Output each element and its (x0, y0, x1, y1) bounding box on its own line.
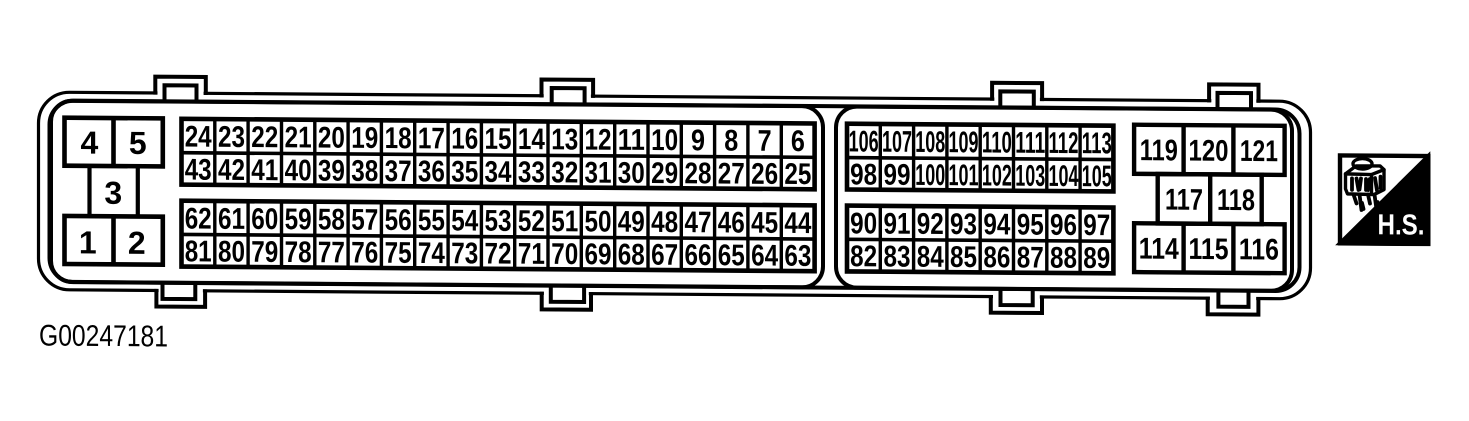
svg-text:93: 93 (950, 208, 977, 241)
svg-text:88: 88 (1050, 242, 1077, 275)
svg-text:61: 61 (218, 203, 245, 236)
svg-text:65: 65 (718, 239, 745, 272)
svg-text:24: 24 (185, 121, 212, 154)
svg-text:22: 22 (251, 121, 278, 154)
svg-text:44: 44 (784, 207, 811, 240)
svg-text:58: 58 (318, 203, 345, 236)
svg-text:86: 86 (983, 241, 1010, 274)
svg-text:31: 31 (585, 156, 612, 189)
svg-text:85: 85 (950, 241, 977, 274)
svg-text:66: 66 (685, 239, 712, 272)
svg-text:115: 115 (1189, 233, 1229, 266)
svg-text:112: 112 (1049, 127, 1079, 160)
svg-text:62: 62 (185, 202, 212, 235)
svg-text:82: 82 (850, 240, 877, 273)
svg-text:106: 106 (849, 125, 879, 158)
svg-text:35: 35 (451, 156, 478, 189)
svg-text:48: 48 (651, 206, 678, 239)
svg-text:20: 20 (318, 122, 345, 155)
svg-text:101: 101 (949, 159, 979, 192)
svg-text:7: 7 (758, 125, 772, 158)
svg-text:19: 19 (351, 122, 378, 155)
svg-text:17: 17 (418, 122, 445, 155)
svg-text:64: 64 (751, 239, 778, 272)
svg-text:68: 68 (618, 238, 645, 271)
svg-text:59: 59 (285, 203, 312, 236)
svg-text:78: 78 (285, 236, 312, 269)
svg-text:21: 21 (285, 121, 312, 154)
svg-text:90: 90 (850, 207, 877, 240)
svg-text:120: 120 (1189, 135, 1229, 168)
svg-text:1: 1 (79, 224, 97, 260)
svg-text:32: 32 (551, 156, 578, 189)
svg-text:121: 121 (1240, 135, 1278, 168)
svg-text:110: 110 (982, 126, 1012, 159)
svg-text:38: 38 (351, 155, 378, 188)
svg-text:29: 29 (651, 157, 678, 190)
svg-text:53: 53 (485, 205, 512, 238)
svg-text:102: 102 (982, 159, 1012, 192)
svg-text:36: 36 (418, 155, 445, 188)
svg-text:99: 99 (884, 159, 911, 192)
svg-text:43: 43 (185, 154, 212, 187)
svg-text:63: 63 (784, 240, 811, 273)
svg-text:47: 47 (685, 206, 712, 239)
svg-text:40: 40 (285, 154, 312, 187)
svg-text:97: 97 (1083, 209, 1110, 242)
svg-text:104: 104 (1049, 160, 1079, 193)
svg-text:116: 116 (1239, 233, 1279, 266)
svg-text:95: 95 (1017, 209, 1044, 242)
svg-text:30: 30 (618, 157, 645, 190)
svg-text:9: 9 (691, 124, 705, 157)
svg-text:100: 100 (915, 159, 945, 192)
svg-text:26: 26 (751, 158, 778, 191)
svg-text:16: 16 (451, 123, 478, 156)
svg-text:56: 56 (385, 204, 412, 237)
svg-text:87: 87 (1017, 241, 1044, 274)
svg-text:103: 103 (1015, 160, 1045, 193)
svg-text:42: 42 (218, 154, 245, 187)
svg-text:77: 77 (318, 236, 345, 269)
svg-text:49: 49 (618, 206, 645, 239)
svg-text:111: 111 (1015, 127, 1045, 160)
svg-text:109: 109 (949, 126, 979, 159)
svg-text:84: 84 (917, 241, 944, 274)
svg-text:6: 6 (791, 125, 805, 158)
svg-text:73: 73 (451, 237, 478, 270)
svg-text:70: 70 (551, 238, 578, 271)
svg-text:79: 79 (251, 236, 278, 269)
svg-text:80: 80 (218, 235, 245, 268)
svg-text:107: 107 (882, 126, 912, 159)
svg-text:118: 118 (1217, 184, 1255, 217)
svg-text:117: 117 (1165, 184, 1203, 217)
svg-text:13: 13 (551, 123, 578, 156)
svg-text:55: 55 (418, 204, 445, 237)
svg-text:37: 37 (385, 155, 412, 188)
svg-text:105: 105 (1082, 160, 1112, 193)
svg-text:67: 67 (651, 239, 678, 272)
svg-text:15: 15 (485, 123, 512, 156)
svg-text:75: 75 (385, 237, 412, 270)
svg-text:98: 98 (850, 158, 877, 191)
svg-text:25: 25 (784, 158, 811, 191)
svg-text:3: 3 (104, 175, 122, 211)
svg-text:51: 51 (551, 205, 578, 238)
svg-text:18: 18 (385, 122, 412, 155)
svg-text:71: 71 (518, 238, 545, 271)
svg-text:34: 34 (485, 156, 512, 189)
svg-text:41: 41 (251, 154, 278, 187)
svg-text:119: 119 (1140, 134, 1178, 167)
svg-text:113: 113 (1082, 127, 1112, 160)
svg-text:8: 8 (724, 125, 738, 158)
svg-text:52: 52 (518, 205, 545, 238)
svg-text:92: 92 (917, 208, 944, 241)
svg-text:81: 81 (185, 235, 212, 268)
svg-text:4: 4 (81, 124, 99, 160)
svg-text:94: 94 (983, 208, 1010, 241)
svg-text:28: 28 (685, 157, 712, 190)
svg-text:60: 60 (251, 203, 278, 236)
svg-text:12: 12 (585, 123, 612, 156)
svg-text:50: 50 (585, 205, 612, 238)
svg-text:96: 96 (1050, 209, 1077, 242)
svg-text:91: 91 (884, 208, 911, 241)
svg-text:57: 57 (351, 204, 378, 237)
svg-text:89: 89 (1083, 242, 1110, 275)
svg-text:27: 27 (718, 157, 745, 190)
svg-text:45: 45 (751, 207, 778, 240)
svg-text:83: 83 (884, 240, 911, 273)
svg-text:G00247181: G00247181 (39, 319, 168, 353)
svg-text:33: 33 (518, 156, 545, 189)
svg-text:54: 54 (451, 204, 478, 237)
svg-text:72: 72 (485, 237, 512, 270)
svg-text:11: 11 (618, 124, 645, 157)
svg-text:H.S.: H.S. (1378, 209, 1425, 241)
svg-text:39: 39 (318, 155, 345, 188)
svg-text:14: 14 (518, 123, 545, 156)
svg-text:46: 46 (718, 206, 745, 239)
svg-text:2: 2 (128, 225, 146, 261)
svg-text:108: 108 (915, 126, 945, 159)
svg-text:114: 114 (1139, 233, 1179, 266)
svg-text:69: 69 (585, 238, 612, 271)
svg-text:10: 10 (651, 124, 678, 157)
svg-text:74: 74 (418, 237, 445, 270)
svg-text:76: 76 (351, 236, 378, 269)
svg-text:23: 23 (218, 121, 245, 154)
svg-text:5: 5 (129, 125, 147, 161)
